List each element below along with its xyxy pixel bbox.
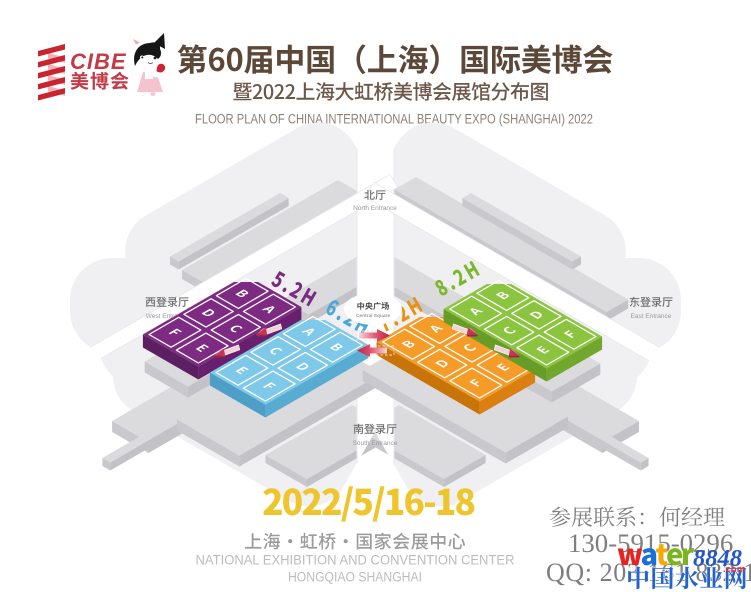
svg-text:Central Square: Central Square (356, 313, 390, 319)
svg-text:FLOOR PLAN OF CHINA INTERNATIO: FLOOR PLAN OF CHINA INTERNATIONAL BEAUTY… (195, 112, 593, 127)
svg-text:North Entrance: North Entrance (353, 205, 397, 212)
svg-text:NATIONAL EXHIBITION AND CONVEN: NATIONAL EXHIBITION AND CONVENTION CENTE… (196, 553, 515, 568)
svg-text:HONGQIAO SHANGHAI: HONGQIAO SHANGHAI (288, 570, 422, 585)
svg-text:South Entrance: South Entrance (353, 440, 398, 447)
svg-text:East Entrance: East Entrance (631, 313, 672, 320)
svg-text:.com: .com (723, 564, 745, 575)
svg-text:CIBE: CIBE (70, 49, 127, 74)
